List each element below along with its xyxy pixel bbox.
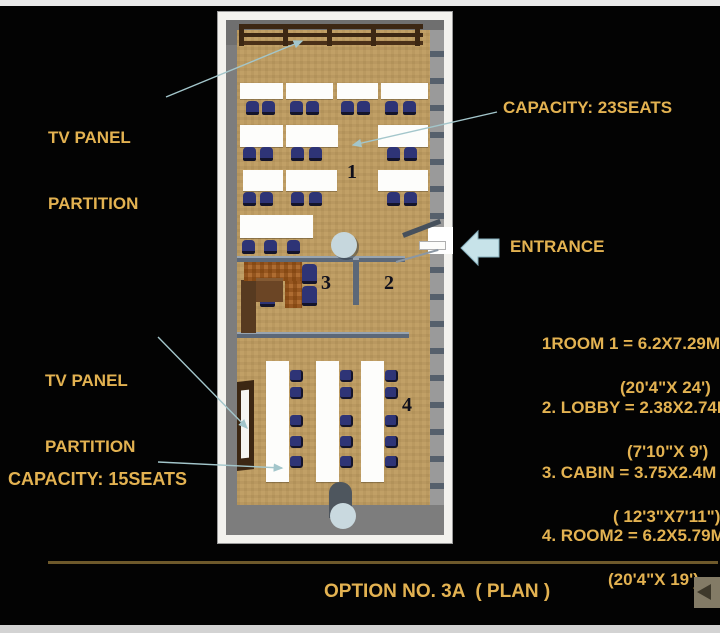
desk — [337, 83, 378, 99]
desk — [243, 170, 283, 191]
desk — [266, 361, 289, 482]
chair — [287, 240, 300, 254]
chair — [387, 147, 400, 161]
page-title: OPTION NO. 3A ( PLAN ) — [324, 580, 550, 604]
arrow-left-icon — [461, 231, 499, 265]
chair — [290, 370, 303, 382]
dimension-line: 2. LOBBY = 2.38X2.74M — [542, 398, 720, 417]
entrance-door-leaf — [419, 241, 446, 250]
chair — [246, 101, 259, 115]
room2-number: 4 — [402, 395, 412, 415]
chair — [242, 240, 255, 254]
dimension-line: 1ROOM 1 = 6.2X7.29M — [542, 334, 720, 353]
chair — [243, 192, 256, 206]
chair — [404, 147, 417, 161]
chair — [387, 192, 400, 206]
chair — [291, 192, 304, 206]
partition-wall — [353, 258, 359, 305]
label-line: TV PANEL — [48, 127, 138, 149]
tv-panel-partition-left — [237, 380, 254, 471]
dimension-line: 4. ROOM2 = 6.2X5.79M — [542, 526, 720, 545]
desk — [286, 125, 338, 147]
dimension-room2: 4. ROOM2 = 6.2X5.79M (20'4"X 19') — [523, 503, 720, 633]
label-line: PARTITION — [48, 193, 138, 215]
chair — [302, 264, 317, 284]
tv-panel-partition-label-top: TV PANEL PARTITION — [48, 83, 138, 259]
chair — [260, 192, 273, 206]
desk — [381, 83, 428, 99]
chair — [403, 101, 416, 115]
cabin-number: 3 — [321, 273, 331, 293]
label-line: TV PANEL — [45, 370, 135, 392]
chair — [260, 147, 273, 161]
chair — [385, 415, 398, 427]
floor-plan: 1 3 2 4 — [217, 11, 453, 544]
chair — [340, 370, 353, 382]
chair — [357, 101, 370, 115]
chair — [340, 456, 353, 468]
chair — [404, 192, 417, 206]
desk — [286, 170, 337, 191]
back-arrow-icon — [697, 584, 711, 600]
chair — [385, 370, 398, 382]
label-line: PARTITION — [45, 436, 135, 458]
desk — [316, 361, 339, 482]
footer-divider — [48, 561, 718, 564]
desk — [240, 83, 283, 99]
chair — [340, 387, 353, 399]
chair — [309, 192, 322, 206]
chair — [385, 101, 398, 115]
top-edge-strip — [0, 0, 720, 6]
chair — [309, 147, 322, 161]
capacity-room2-label: CAPACITY: 15SEATS — [8, 468, 187, 490]
partition-wall — [237, 332, 409, 338]
cabin-desk — [285, 281, 302, 308]
cabin-wall — [241, 280, 256, 333]
chair — [340, 436, 353, 448]
capacity-room1-label: CAPACITY: 23SEATS — [503, 97, 672, 119]
chair — [302, 286, 317, 306]
desk — [361, 361, 384, 482]
room1-number: 1 — [347, 162, 357, 182]
chair — [262, 101, 275, 115]
bottom-edge-strip — [0, 625, 720, 633]
chair — [291, 147, 304, 161]
chair — [385, 456, 398, 468]
chair — [243, 147, 256, 161]
chair — [306, 101, 319, 115]
desk — [286, 83, 333, 99]
tv-panel-partition-top — [239, 24, 423, 46]
desk — [378, 125, 428, 147]
chair — [385, 387, 398, 399]
chair — [290, 436, 303, 448]
entrance-label: ENTRANCE — [510, 236, 604, 258]
chair — [290, 101, 303, 115]
round-table — [331, 232, 357, 258]
dimension-line: 3. CABIN = 3.75X2.4M — [542, 463, 716, 482]
cabin-side-table — [256, 278, 283, 302]
desk — [378, 170, 428, 191]
chair — [385, 436, 398, 448]
chair — [290, 415, 303, 427]
chair — [290, 387, 303, 399]
column-top — [330, 503, 356, 529]
desk — [240, 215, 313, 238]
lobby-number: 2 — [384, 273, 394, 293]
tv-screen — [241, 390, 249, 459]
back-button[interactable] — [694, 577, 720, 608]
chair — [340, 415, 353, 427]
slide-canvas: 1 3 2 4 TV PANEL PARTITION CAPACITY: 23S… — [0, 0, 720, 633]
plan-right-wall — [430, 30, 444, 505]
chair — [290, 456, 303, 468]
chair — [341, 101, 354, 115]
desk — [240, 125, 283, 147]
chair — [264, 240, 277, 254]
